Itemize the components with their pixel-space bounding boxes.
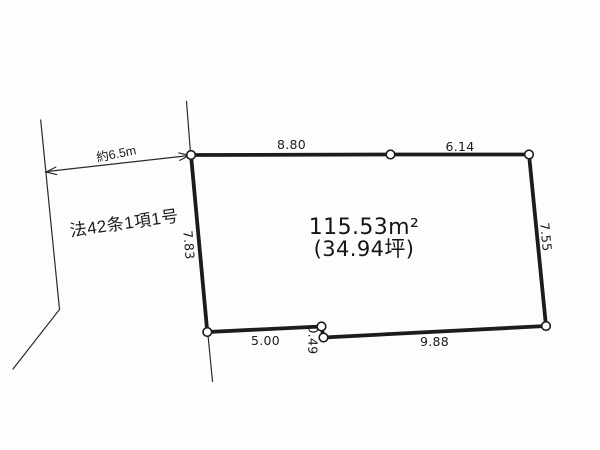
dimension-label-top-right: 6.14 <box>445 139 474 154</box>
land-plot-svg: 8.80 6.14 7.55 7.83 5.00 0.49 9.88 約6.5m… <box>0 0 600 450</box>
road-far-edge-line <box>13 120 60 369</box>
dimension-label-top-left: 8.80 <box>277 137 306 152</box>
vertex-marker-top-middle <box>386 150 395 159</box>
dimension-label-bottom-right: 9.88 <box>420 334 449 349</box>
road-edge-lower-extension-line <box>208 333 213 382</box>
dimension-label-right-side: 7.55 <box>537 222 555 252</box>
road-edge-upper-extension-line <box>187 102 191 154</box>
land-plot-diagram: 8.80 6.14 7.55 7.83 5.00 0.49 9.88 約6.5m… <box>0 0 600 450</box>
dimension-label-bottom-jog: 0.49 <box>305 325 321 354</box>
vertex-marker-bottom-left <box>203 328 212 337</box>
vertex-marker-top-left <box>187 151 196 160</box>
road-width-label: 約6.5m <box>95 142 137 164</box>
road-classification-label: 法42条1項1号 <box>69 207 180 241</box>
plot-area-tsubo-label: (34.94坪) <box>314 237 415 261</box>
vertex-marker-bottom-right <box>542 322 551 331</box>
dimension-label-left-side: 7.83 <box>180 230 197 260</box>
vertex-marker-top-right <box>525 150 534 159</box>
dimension-label-bottom-left: 5.00 <box>251 333 280 348</box>
